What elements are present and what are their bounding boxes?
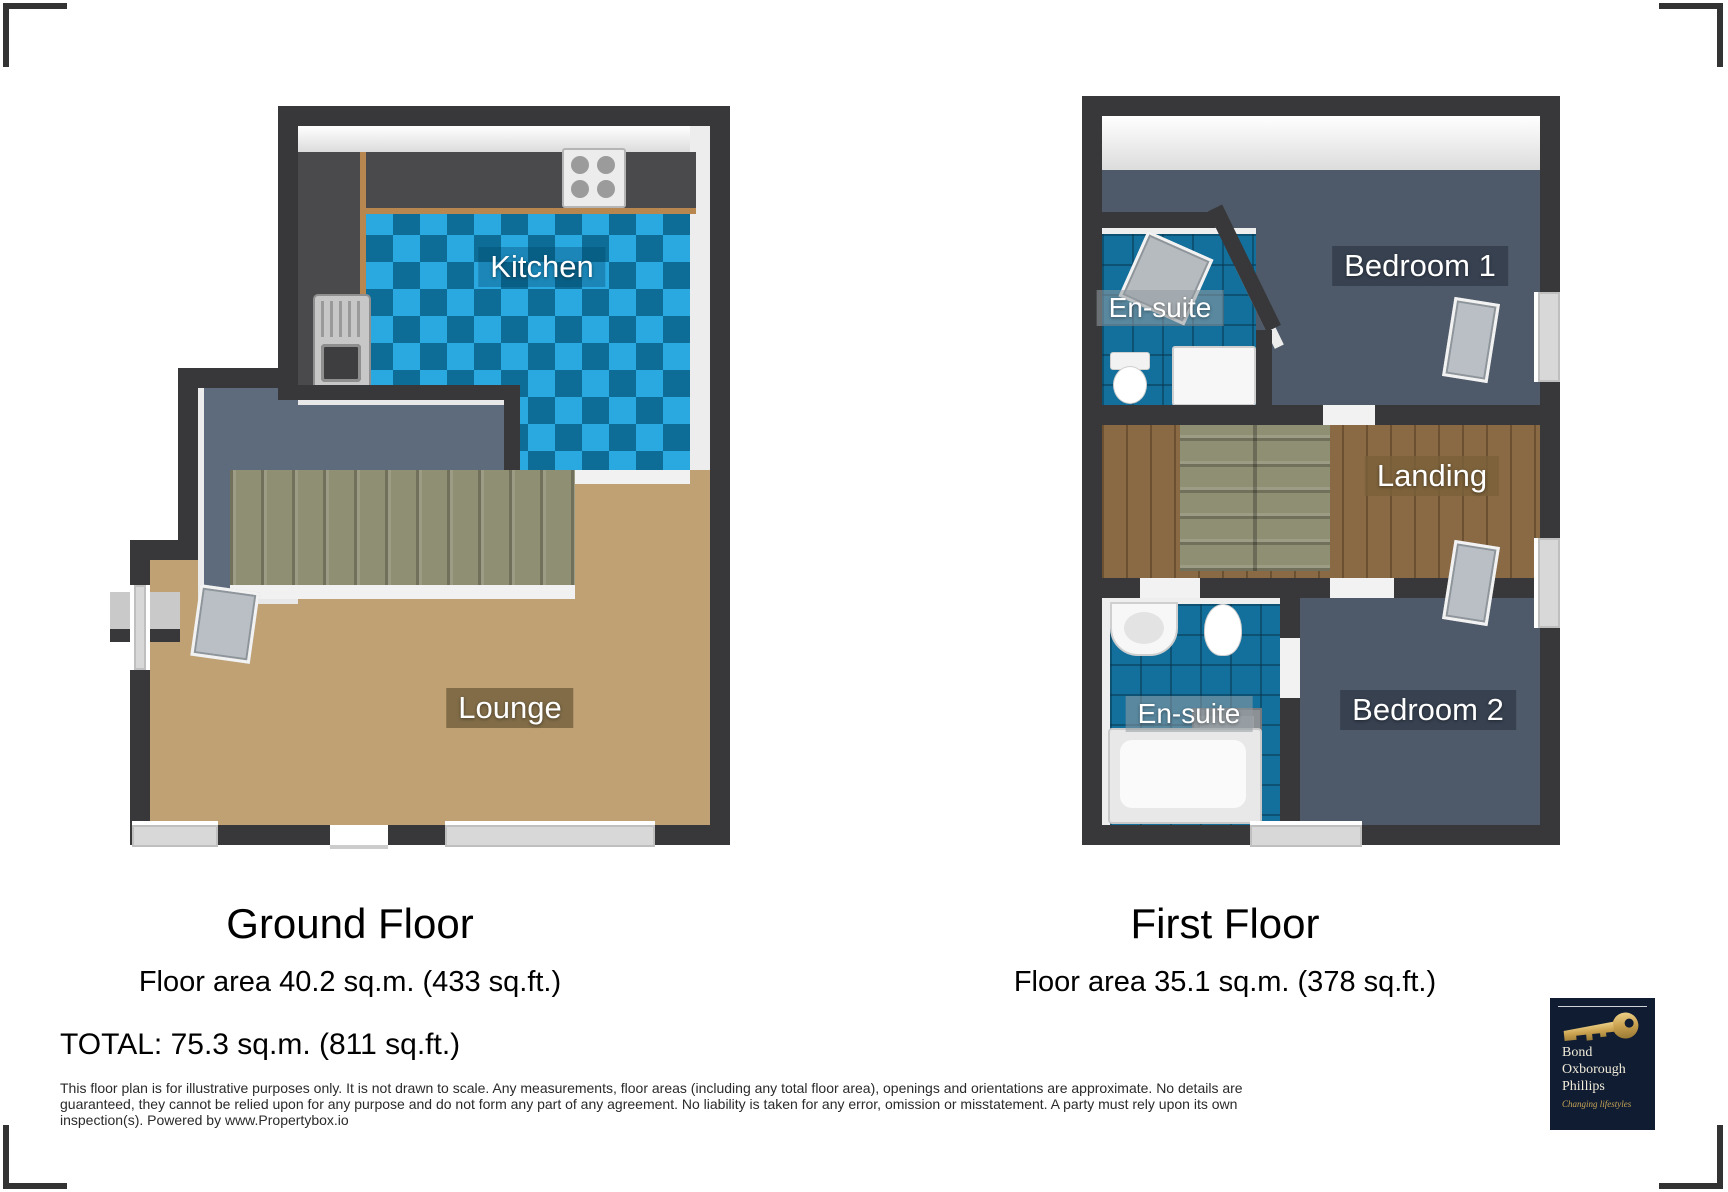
room-label-ensuite2: En-suite (1126, 696, 1253, 732)
ensuite2-toilet-bowl (1204, 604, 1242, 656)
corner-mark-bottom-right (1659, 1125, 1723, 1189)
wall-bedroom1-landing (1102, 405, 1540, 425)
ground-floor-area: Floor area 40.2 sq.m. (433 sq.ft.) (139, 966, 561, 999)
logo-name-line1: Bond (1562, 1045, 1592, 1060)
wall-right (710, 106, 730, 845)
room-label-bedroom2: Bedroom 2 (1340, 690, 1516, 730)
door-landing-bedroom2 (1330, 578, 1394, 598)
room-label-ensuite1: En-suite (1097, 290, 1224, 326)
room-label-bedroom1: Bedroom 1 (1332, 246, 1508, 286)
door-landing-ensuite2 (1140, 578, 1200, 598)
wall-kitchen-left (278, 106, 298, 388)
disclaimer-line-3: inspection(s). Powered by www.Propertybo… (60, 1112, 349, 1129)
agency-logo: Bond Oxborough Phillips Changing lifesty… (1550, 998, 1655, 1130)
wall-left (1082, 96, 1102, 845)
logo-tagline: Changing lifestyles (1562, 1099, 1631, 1109)
stove-burner (597, 156, 615, 174)
ensuite1-wall-right (1256, 330, 1272, 405)
stairs-ground-edge (230, 585, 575, 599)
ensuite2-bath-inner (1120, 740, 1246, 808)
stair-landing-strip (575, 470, 690, 484)
kitchen-top-wallface (298, 126, 690, 152)
exterior-patch (110, 388, 178, 540)
first-floor-title: First Floor (1131, 900, 1320, 948)
lounge-window-1 (132, 821, 218, 851)
stove (562, 148, 626, 208)
lounge-door (330, 825, 388, 849)
ensuite2-sink-basin (1124, 612, 1164, 644)
room-label-landing: Landing (1365, 456, 1499, 496)
wall-hall-left (178, 368, 198, 560)
lounge-window-2 (445, 821, 655, 851)
inner-room-wall-right (504, 385, 520, 470)
disclaimer-line-1: This floor plan is for illustrative purp… (60, 1080, 1243, 1097)
floor-plan-first: Bedroom 1 En-suite Landing En-suite Bedr… (1082, 96, 1560, 845)
stove-burner (571, 156, 589, 174)
inner-room-wall-top (278, 385, 520, 400)
corner-mark-bottom-left (3, 1125, 67, 1189)
floorplan-page: Kitchen Lounge (0, 0, 1728, 1192)
logo-name-line3: Phillips (1562, 1079, 1605, 1094)
wall-right (1540, 96, 1560, 845)
sink-drainer (321, 301, 361, 337)
ensuite2-sink-unit (1110, 602, 1178, 656)
stove-burner (597, 180, 615, 198)
stairs-landing-divider (1253, 425, 1257, 571)
wall-top (278, 106, 730, 126)
sink-basin (321, 344, 361, 382)
ensuite2-bath (1108, 728, 1262, 824)
ensuite1-wall-top (1102, 212, 1215, 228)
kitchen-sink (313, 294, 371, 392)
ensuite1-toilet-bowl (1113, 366, 1147, 404)
corner-mark-top-left (3, 3, 67, 67)
door-landing-bedroom1 (1323, 405, 1375, 425)
bedroom1-top-wallface (1102, 116, 1540, 170)
ground-floor-title: Ground Floor (226, 900, 473, 948)
stove-burner (571, 180, 589, 198)
lounge-window-left (130, 585, 150, 670)
door-ensuite2-bedroom2 (1280, 638, 1300, 698)
bedroom2-window-bottom (1250, 821, 1362, 851)
lounge-window-casement (190, 584, 259, 664)
logo-name-line2: Oxborough (1562, 1062, 1626, 1077)
bedroom2-window (1534, 538, 1564, 628)
first-floor-area: Floor area 35.1 sq.m. (378 sq.ft.) (1014, 966, 1436, 999)
room-label-lounge: Lounge (446, 688, 573, 728)
stairs-ground (230, 470, 575, 585)
inner-room-floor (298, 400, 504, 475)
ensuite1-shower-tray (1172, 346, 1256, 406)
floor-plan-ground: Kitchen Lounge (110, 96, 730, 845)
room-label-kitchen: Kitchen (478, 247, 605, 287)
wall-ensuite2-bedroom2 (1280, 598, 1300, 825)
wall-top (1082, 96, 1560, 116)
total-area-line: TOTAL: 75.3 sq.m. (811 sq.ft.) (60, 1028, 460, 1062)
corner-mark-top-right (1659, 3, 1723, 67)
bedroom1-window (1534, 292, 1564, 382)
disclaimer-line-2: guaranteed, they cannot be relied upon f… (60, 1096, 1237, 1113)
wall-hall-top (178, 368, 278, 388)
